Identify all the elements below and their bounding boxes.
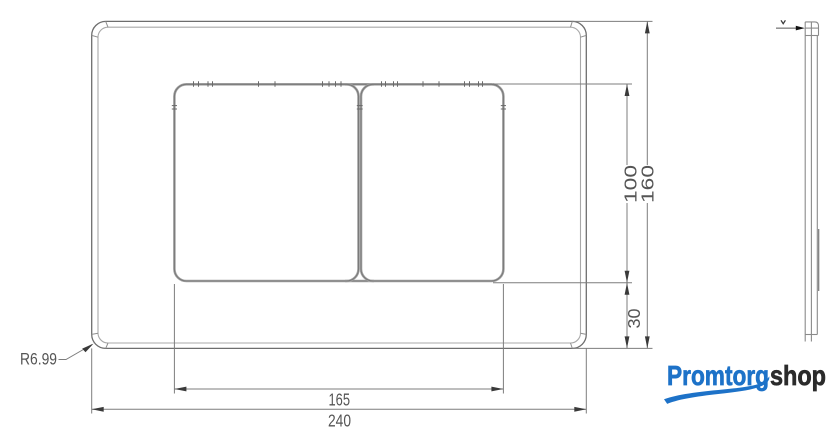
svg-text:160: 160 <box>638 165 658 203</box>
svg-text:shop: shop <box>770 360 826 391</box>
svg-text:165: 165 <box>329 390 351 410</box>
svg-text:R6.99: R6.99 <box>20 351 57 369</box>
svg-text:240: 240 <box>328 411 351 431</box>
svg-text:100: 100 <box>621 165 641 203</box>
svg-text:30: 30 <box>624 308 644 328</box>
